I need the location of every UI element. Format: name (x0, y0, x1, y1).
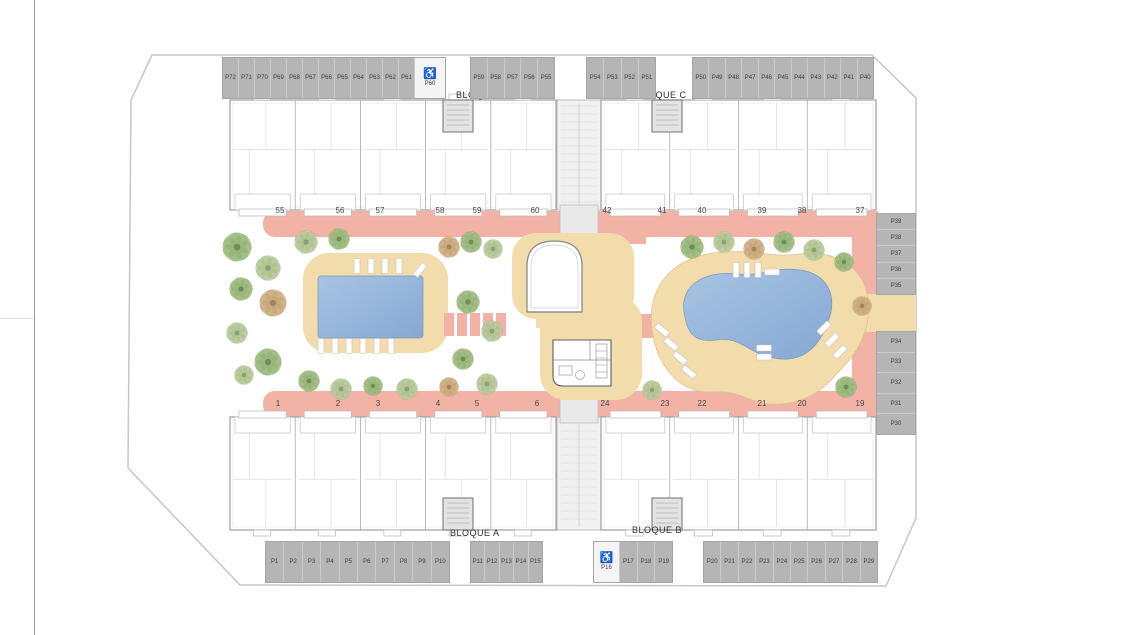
block-label-a: BLOQUE A (450, 529, 500, 538)
unit-number: 60 (524, 207, 546, 215)
parking-slot: P32 (877, 373, 915, 394)
parking-slot-label: P34 (891, 339, 902, 345)
parking-slot: P25 (791, 542, 808, 582)
tree (440, 377, 459, 396)
unit-number: 22 (691, 400, 713, 408)
parking-slot: P68 (287, 58, 303, 98)
parking-slot: P20 (704, 542, 721, 582)
tree (853, 296, 872, 315)
parking-slot: P54 (587, 58, 604, 98)
parking-group-top-center-right: P54P53P52P51 (586, 57, 656, 99)
sun-lounger (360, 339, 366, 354)
parking-slot-label: P27 (829, 559, 840, 565)
tree (835, 252, 854, 271)
parking-slot: P27 (826, 542, 843, 582)
parking-slot-label: P52 (624, 75, 635, 81)
sun-lounger (346, 339, 352, 354)
sun-lounger (382, 259, 388, 274)
parking-slot-accessible: ♿P60 (415, 58, 445, 98)
parking-slot: P21 (721, 542, 738, 582)
tree (744, 238, 765, 259)
parking-slot-label: P63 (369, 75, 380, 81)
parking-slot: P53 (604, 58, 621, 98)
parking-slot: P9 (413, 542, 431, 582)
unit-number: 4 (427, 400, 449, 408)
wheelchair-icon: ♿ (423, 69, 437, 80)
parking-slot: P63 (367, 58, 383, 98)
parking-group-bottom-center-left: P11P12P13P14P15 (470, 541, 543, 583)
parking-slot: P48 (726, 58, 742, 98)
parking-slot-label: P20 (707, 559, 718, 565)
sun-lounger (354, 259, 360, 274)
parking-slot: P2 (284, 542, 302, 582)
parking-slot-label: P2 (289, 559, 296, 565)
parking-slot: P11 (471, 542, 485, 582)
parking-slot-label: P42 (827, 75, 838, 81)
parking-slot-label: P8 (400, 559, 407, 565)
parking-slot-label: P69 (273, 75, 284, 81)
parking-slot-label: P57 (507, 75, 518, 81)
parking-slot-accessible: ♿P16 (594, 542, 620, 582)
unit-number: 6 (526, 400, 548, 408)
tree (477, 373, 498, 394)
tree (482, 320, 503, 341)
sun-lounger (374, 339, 380, 354)
parking-slot: P67 (303, 58, 319, 98)
parking-slot: P69 (271, 58, 287, 98)
parking-slot-label: P51 (642, 75, 653, 81)
parking-slot: P22 (739, 542, 756, 582)
parking-slot-label: P64 (353, 75, 364, 81)
parking-slot: P28 (843, 542, 860, 582)
parking-slot-label: P9 (418, 559, 425, 565)
parking-slot-label: P40 (860, 75, 871, 81)
parking-slot: P15 (529, 542, 542, 582)
site-plan: BLOQUE D BLOQUE C BLOQUE A BLOQUE B P72P… (0, 0, 1130, 635)
parking-slot: P45 (775, 58, 791, 98)
tree (260, 290, 287, 317)
parking-slot: P1 (266, 542, 284, 582)
unit-number: 59 (466, 207, 488, 215)
parking-slot: P18 (638, 542, 656, 582)
tree (439, 236, 460, 257)
tree (235, 365, 254, 384)
parking-slot: P71 (239, 58, 255, 98)
parking-slot: P55 (538, 58, 554, 98)
sun-lounger (388, 339, 394, 354)
pool-house (553, 340, 611, 386)
wheelchair-icon: ♿ (600, 553, 614, 564)
tree (681, 236, 704, 259)
sun-lounger (765, 269, 780, 275)
parking-slot: P43 (808, 58, 824, 98)
unit-number: 41 (651, 207, 673, 215)
sun-lounger (396, 259, 402, 274)
parking-group-top-left: P72P71P70P69P68P67P66P65P64P63P62P61♿P60 (222, 57, 446, 99)
parking-slot-label: P19 (658, 559, 669, 565)
parking-slot: P10 (432, 542, 449, 582)
plan-drawing (0, 0, 1130, 635)
unit-number: 3 (367, 400, 389, 408)
unit-number: 42 (596, 207, 618, 215)
parking-slot-label: P26 (811, 559, 822, 565)
unit-number: 2 (327, 400, 349, 408)
parking-slot: P64 (351, 58, 367, 98)
parking-slot: P72 (223, 58, 239, 98)
parking-slot: P17 (620, 542, 638, 582)
parking-slot-label: P5 (345, 559, 352, 565)
parking-slot: P8 (395, 542, 413, 582)
parking-slot-label: P60 (425, 81, 436, 87)
unit-number: 55 (269, 207, 291, 215)
parking-slot-label: P68 (289, 75, 300, 81)
parking-slot-label: P38 (891, 235, 902, 241)
parking-slot: P3 (303, 542, 321, 582)
sheet-frame-line (34, 0, 35, 635)
parking-slot-label: P58 (490, 75, 501, 81)
parking-slot: P57 (505, 58, 522, 98)
parking-slot: P39 (877, 214, 915, 230)
parking-slot: P33 (877, 353, 915, 374)
stair-core (652, 100, 682, 132)
parking-slot-label: P54 (590, 75, 601, 81)
pool-rectangular (318, 276, 423, 338)
parking-slot: P6 (358, 542, 376, 582)
parking-slot: P59 (471, 58, 488, 98)
parking-slot-label: P71 (241, 75, 252, 81)
parking-slot-label: P47 (745, 75, 756, 81)
tree (484, 239, 503, 258)
parking-slot: P58 (488, 58, 505, 98)
unit-number: 57 (369, 207, 391, 215)
tree (461, 231, 482, 252)
parking-slot-label: P48 (728, 75, 739, 81)
parking-slot-label: P31 (891, 401, 902, 407)
unit-number: 1 (267, 400, 289, 408)
stair-core (443, 100, 473, 132)
unit-number: 37 (849, 207, 871, 215)
parking-slot: P49 (709, 58, 725, 98)
wing-bloque-d (230, 94, 556, 216)
sun-lounger (733, 263, 739, 278)
tree (329, 228, 350, 249)
parking-slot: P34 (877, 332, 915, 353)
tree (295, 231, 318, 254)
parking-slot-label: P61 (401, 75, 412, 81)
sun-lounger (318, 339, 324, 354)
parking-slot-label: P13 (501, 559, 512, 565)
parking-slot: P4 (321, 542, 339, 582)
sun-lounger (757, 354, 772, 360)
parking-group-right-lower: P34P33P32P31P30 (876, 331, 916, 435)
parking-slot-label: P16 (601, 565, 612, 571)
unit-number: 21 (751, 400, 773, 408)
parking-slot-label: P30 (891, 421, 902, 427)
courtyard-pavilion (527, 241, 582, 312)
parking-slot-label: P3 (308, 559, 315, 565)
tree (714, 231, 735, 252)
parking-slot: P37 (877, 246, 915, 262)
parking-slot-label: P45 (778, 75, 789, 81)
parking-slot-label: P7 (381, 559, 388, 565)
parking-slot-label: P10 (435, 559, 446, 565)
parking-slot-label: P14 (516, 559, 527, 565)
parking-slot-label: P17 (623, 559, 634, 565)
tree (299, 370, 320, 391)
parking-slot: P14 (514, 542, 528, 582)
tree (227, 322, 248, 343)
parking-slot: P52 (622, 58, 639, 98)
parking-slot-label: P46 (761, 75, 772, 81)
parking-group-bottom-right: P20P21P22P23P24P25P26P27P28P29 (703, 541, 878, 583)
parking-slot-label: P32 (891, 380, 902, 386)
wing-bloque-b (601, 411, 876, 536)
tree (223, 233, 252, 262)
parking-slot-label: P29 (864, 559, 875, 565)
parking-slot-label: P65 (337, 75, 348, 81)
unit-number: 38 (791, 207, 813, 215)
sun-lounger (755, 263, 761, 278)
parking-slot: P23 (756, 542, 773, 582)
parking-slot-label: P59 (474, 75, 485, 81)
parking-slot: P35 (877, 279, 915, 294)
parking-slot: P44 (792, 58, 808, 98)
parking-slot: P51 (639, 58, 655, 98)
parking-slot: P19 (655, 542, 672, 582)
unit-number: 20 (791, 400, 813, 408)
parking-slot-label: P67 (305, 75, 316, 81)
parking-slot-label: P23 (759, 559, 770, 565)
sun-lounger (757, 345, 772, 351)
parking-slot-label: P70 (257, 75, 268, 81)
unit-number: 39 (751, 207, 773, 215)
sun-lounger (368, 259, 374, 274)
parking-slot-label: P33 (891, 359, 902, 365)
parking-slot: P50 (693, 58, 709, 98)
block-label-b: BLOQUE B (632, 526, 682, 535)
parking-slot-label: P12 (487, 559, 498, 565)
parking-slot-label: P28 (846, 559, 857, 565)
parking-slot-label: P43 (811, 75, 822, 81)
parking-group-bottom-left: P1P2P3P4P5P6P7P8P9P10 (265, 541, 450, 583)
parking-slot-label: P41 (843, 75, 854, 81)
parking-slot: P65 (335, 58, 351, 98)
parking-slot-label: P21 (724, 559, 735, 565)
parking-slot: P47 (742, 58, 758, 98)
stair-core (443, 498, 473, 530)
parking-slot-label: P22 (742, 559, 753, 565)
parking-slot-label: P24 (776, 559, 787, 565)
parking-slot-label: P4 (326, 559, 333, 565)
unit-number: 58 (429, 207, 451, 215)
parking-slot-label: P62 (385, 75, 396, 81)
parking-slot: P66 (319, 58, 335, 98)
parking-slot-label: P25 (794, 559, 805, 565)
tree (364, 376, 383, 395)
tree (804, 239, 825, 260)
tree (774, 231, 795, 252)
tree (255, 349, 282, 376)
parking-slot-label: P55 (541, 75, 552, 81)
tree (457, 291, 480, 314)
parking-slot-label: P35 (891, 283, 902, 289)
parking-slot-label: P56 (524, 75, 535, 81)
parking-slot-label: P6 (363, 559, 370, 565)
parking-slot: P46 (759, 58, 775, 98)
parking-slot: P40 (858, 58, 873, 98)
parking-slot-label: P1 (271, 559, 278, 565)
parking-slot: P42 (825, 58, 841, 98)
tree (453, 348, 474, 369)
parking-slot: P41 (841, 58, 857, 98)
wing-bloque-a (230, 411, 556, 536)
wing-bloque-c (601, 94, 876, 216)
parking-slot: P56 (521, 58, 538, 98)
parking-slot: P38 (877, 230, 915, 246)
parking-slot-label: P53 (607, 75, 618, 81)
parking-slot: P61 (399, 58, 415, 98)
sun-lounger (332, 339, 338, 354)
tree (397, 378, 418, 399)
parking-slot: P26 (808, 542, 825, 582)
parking-slot: P24 (774, 542, 791, 582)
parking-slot: P62 (383, 58, 399, 98)
parking-slot-label: P11 (473, 559, 483, 565)
unit-number: 19 (849, 400, 871, 408)
parking-slot: P70 (255, 58, 271, 98)
parking-group-top-right: P50P49P48P47P46P45P44P43P42P41P40 (692, 57, 874, 99)
parking-slot: P29 (861, 542, 877, 582)
parking-slot-label: P44 (794, 75, 805, 81)
parking-slot: P12 (485, 542, 499, 582)
parking-slot: P31 (877, 394, 915, 415)
sun-lounger (744, 263, 750, 278)
parking-slot: P36 (877, 263, 915, 279)
tree (836, 376, 857, 397)
tree (256, 256, 281, 281)
tree (331, 378, 352, 399)
unit-number: 5 (466, 400, 488, 408)
parking-slot: P7 (376, 542, 394, 582)
tree (643, 380, 662, 399)
parking-slot-label: P18 (641, 559, 652, 565)
parking-slot-label: P36 (891, 267, 902, 273)
parking-slot-label: P49 (712, 75, 723, 81)
unit-number: 40 (691, 207, 713, 215)
unit-number: 23 (654, 400, 676, 408)
parking-slot-label: P72 (225, 75, 236, 81)
parking-slot: P5 (340, 542, 358, 582)
parking-slot-label: P15 (530, 559, 541, 565)
parking-slot: P30 (877, 414, 915, 434)
parking-slot-label: P66 (321, 75, 332, 81)
unit-number: 24 (594, 400, 616, 408)
unit-number: 56 (329, 207, 351, 215)
parking-slot: P13 (500, 542, 514, 582)
parking-group-right-upper: P39P38P37P36P35 (876, 213, 916, 295)
parking-slot-label: P50 (695, 75, 706, 81)
tree (230, 278, 253, 301)
parking-slot-label: P37 (891, 251, 902, 257)
parking-group-bottom-center-right: ♿P16P17P18P19 (593, 541, 673, 583)
sheet-frame-tick (0, 318, 34, 319)
parking-group-top-center-left: P59P58P57P56P55 (470, 57, 555, 99)
parking-slot-label: P39 (891, 219, 902, 225)
